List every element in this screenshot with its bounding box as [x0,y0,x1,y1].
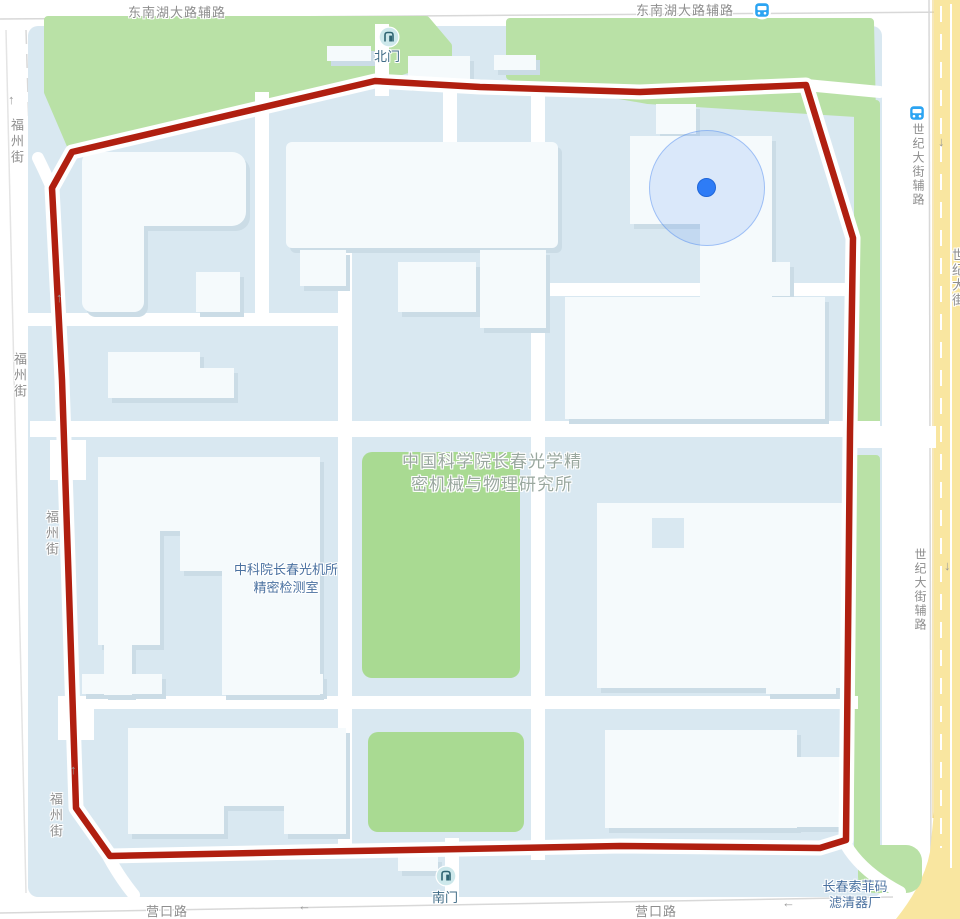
lane-arrow-down: ↓ [938,134,945,149]
sports-fields [362,452,524,832]
lab-label-line2: 精密检测室 [230,579,342,597]
lane-arrow-up: ↑ [56,290,63,305]
street-label-yingkou-east: 营口路 [635,901,677,919]
lab-label-line1: 中科院长春光机所 [230,561,342,579]
factory-label: 长春索菲码 滤清器厂 [810,879,900,911]
campus-name-label: 中国科学院长春光学精 密机械与物理研究所 [382,450,602,496]
lab-label: 中科院长春光机所 精密检测室 [230,561,342,597]
street-label-dongnanhu-east: 东南湖大路辅路 [636,0,734,19]
street-label-shiji: 世纪大街 [948,248,960,308]
lane-arrow-up: ↑ [8,92,15,107]
map-canvas[interactable]: 东南湖大路辅路 东南湖大路辅路 福州街 福州街 福州街 福州街 世纪大街辅路 世… [0,0,960,919]
south-gate-label: 南门 [432,887,458,906]
street-label-fuzhou-1: 福州街 [7,118,26,166]
factory-label-line2: 滤清器厂 [810,895,900,911]
street-label-shiji-fulu-1: 世纪大街辅路 [910,123,927,207]
campus-name-line2: 密机械与物理研究所 [382,473,602,496]
lane-arrow-left: ← [298,898,311,913]
bus-stop-icon[interactable] [752,0,772,20]
street-label-yingkou-west: 营口路 [146,901,188,919]
current-location-dot [697,178,716,197]
street-label-shiji-fulu-2: 世纪大街辅路 [912,548,929,632]
lane-arrow-left: ← [782,895,795,910]
north-gate-label: 北门 [374,46,400,65]
gate-icon[interactable] [435,865,457,887]
lane-arrow-down: ↓ [944,558,951,573]
street-label-dongnanhu-west: 东南湖大路辅路 [128,2,226,21]
street-label-fuzhou-3: 福州街 [42,510,61,558]
street-label-fuzhou-4: 福州街 [46,792,65,840]
highway-shiji-dajie [896,0,960,919]
street-label-fuzhou-2: 福州街 [10,352,29,400]
bus-stop-icon[interactable] [907,103,927,123]
factory-label-line1: 长春索菲码 [810,879,900,895]
gate-icon[interactable] [378,26,400,48]
lane-arrow-up: ↑ [70,762,77,777]
campus-name-line1: 中国科学院长春光学精 [382,450,602,473]
